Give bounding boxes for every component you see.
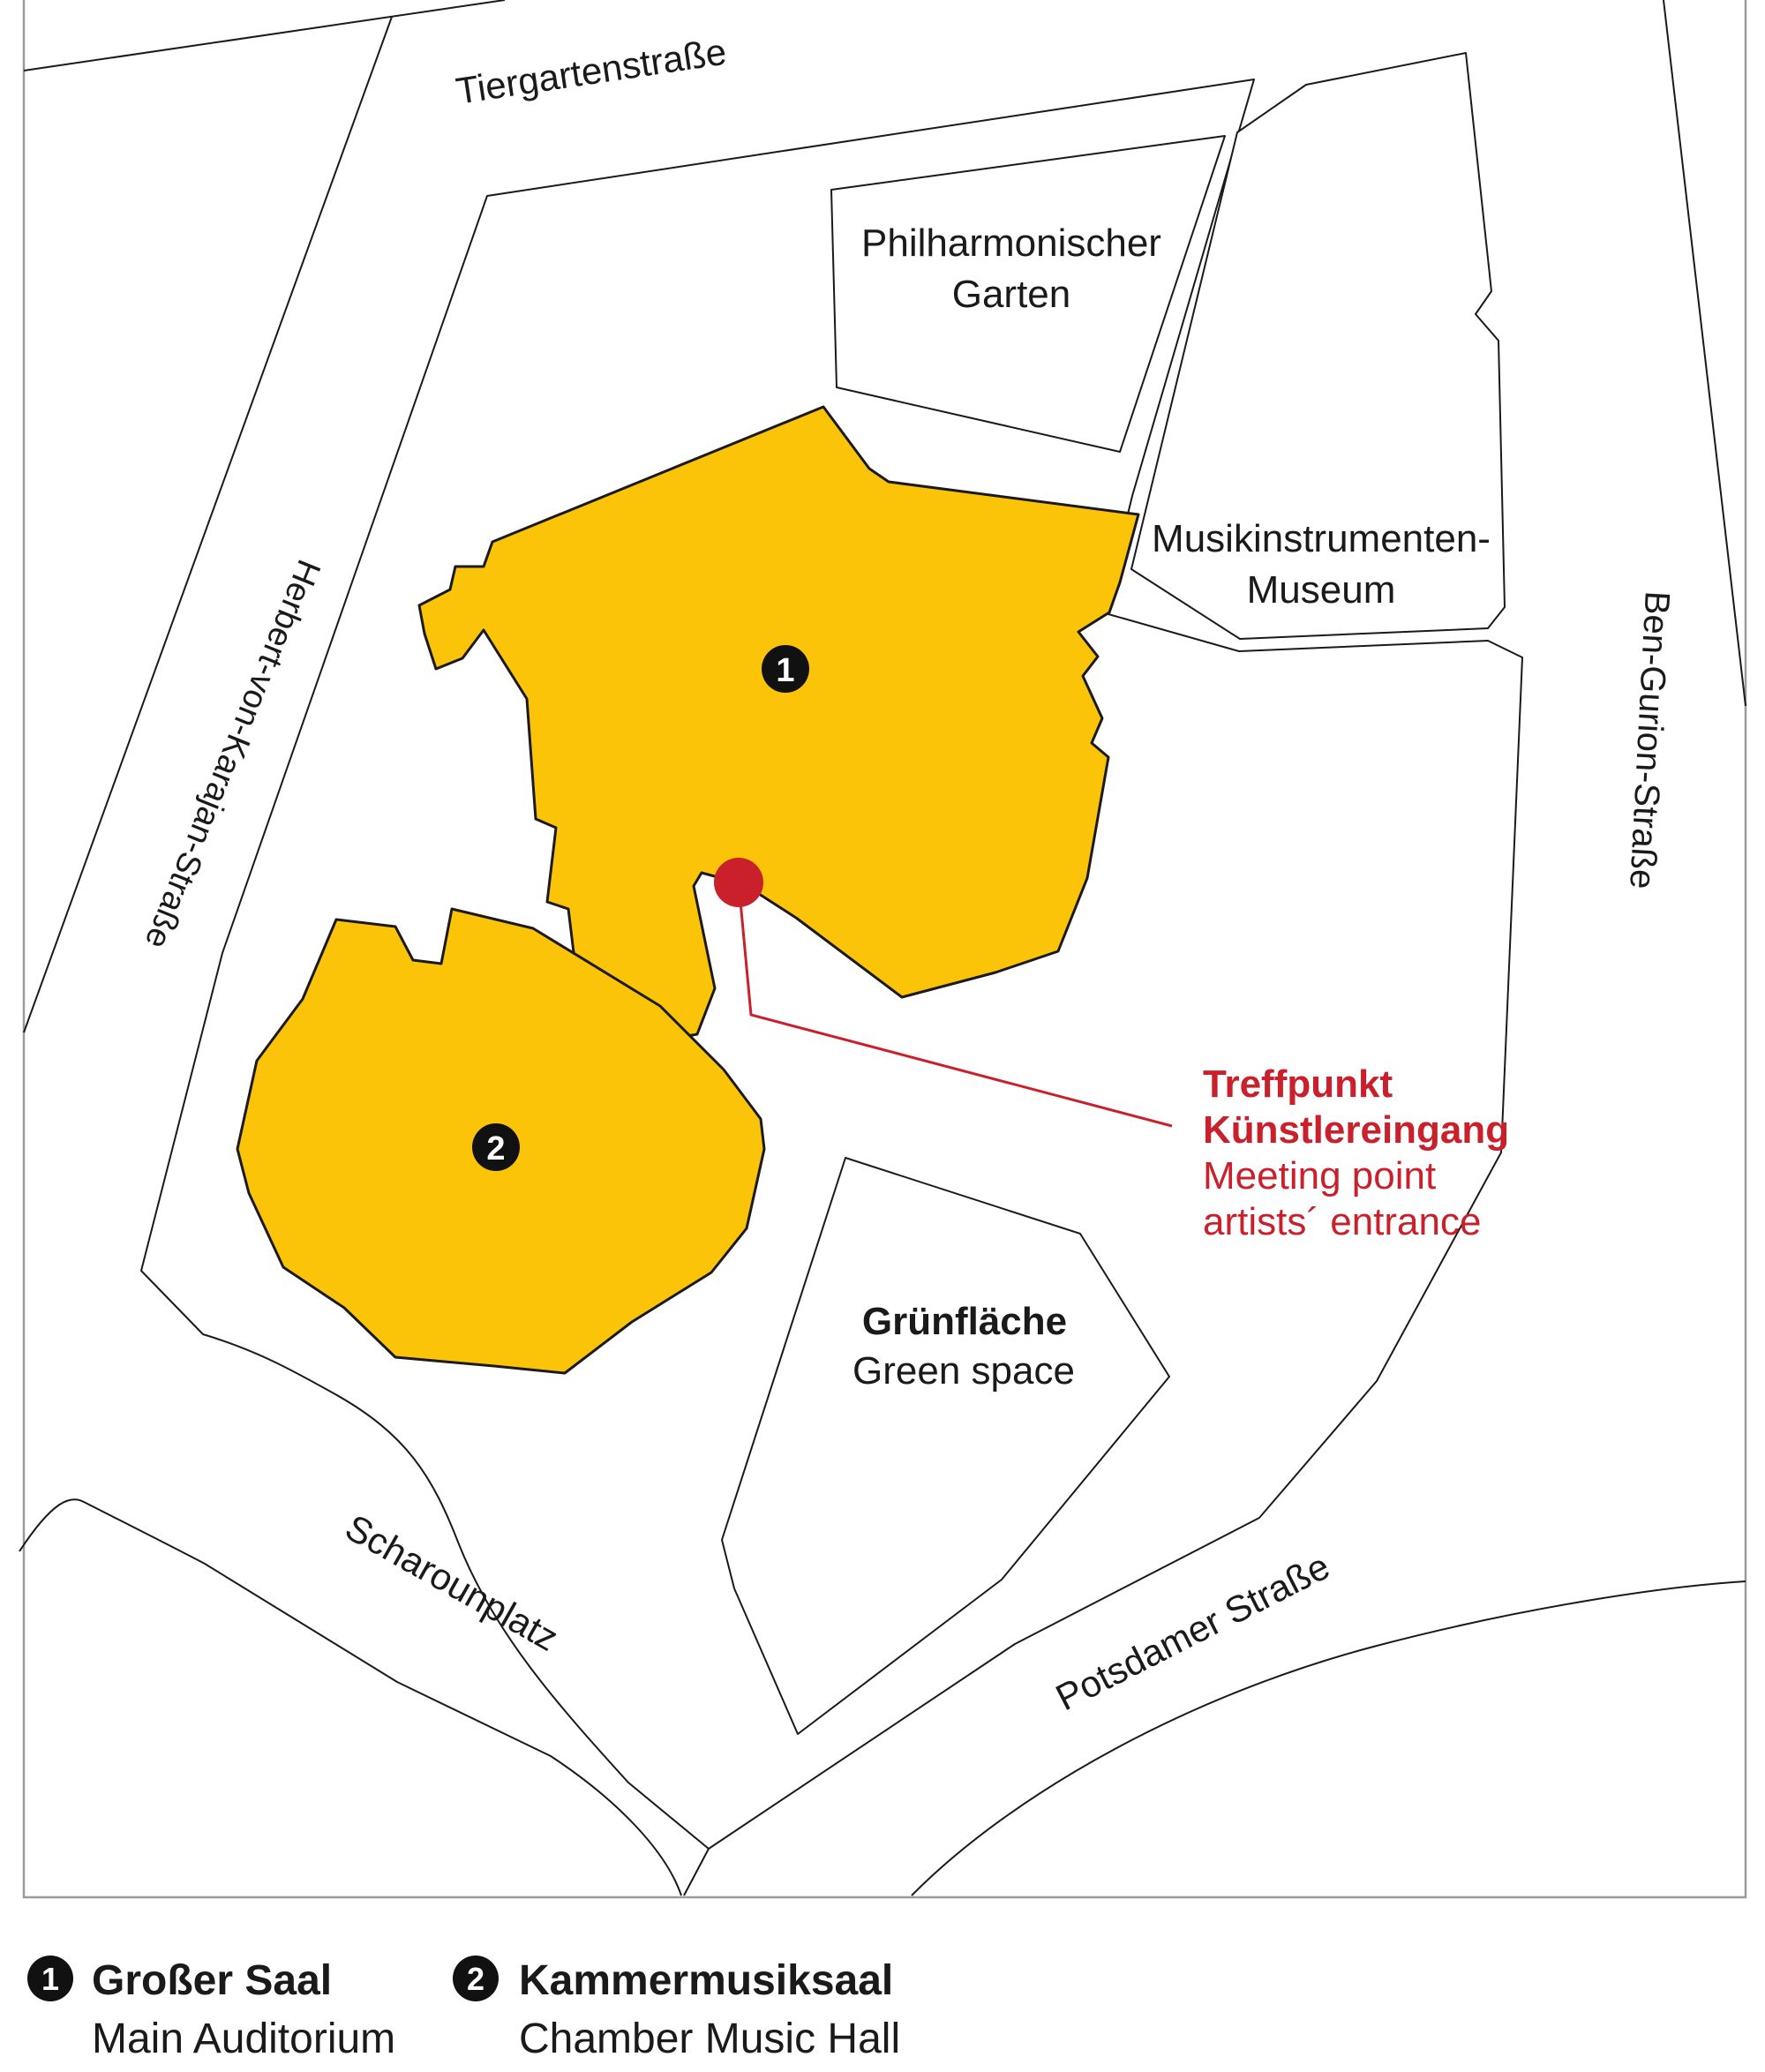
tiergartenstrasse-north-edge-line xyxy=(24,0,505,71)
legend-title-grosser-saal: Großer Saal xyxy=(92,1957,332,2004)
annotation-treffpunkt: Treffpunkt xyxy=(1203,1062,1393,1106)
legend-badge-2-number: 2 xyxy=(467,1961,484,1997)
building-2-badge: 2 xyxy=(472,1123,520,1171)
legend-item-kammermusiksaal: 2 Kammermusiksaal Chamber Music Hall xyxy=(453,1956,900,2062)
site-map-page: Tiergartenstraße Herbert-von-Karajan-Str… xyxy=(0,0,1765,2072)
legend-title-kammermusiksaal: Kammermusiksaal xyxy=(519,1957,893,2004)
legend-subtitle-main-auditorium: Main Auditorium xyxy=(92,2016,395,2062)
garden-label-line1: Philharmonischer xyxy=(861,221,1161,265)
legend: 1 Großer Saal Main Auditorium 2 Kammermu… xyxy=(27,1956,900,2062)
museum-label-line1: Musikinstrumenten- xyxy=(1152,517,1491,560)
meeting-point-dot xyxy=(714,858,763,907)
building-2-badge-number: 2 xyxy=(486,1130,505,1167)
annotation-meeting-point: Meeting point xyxy=(1203,1154,1436,1197)
garden-label-line2: Garten xyxy=(952,273,1071,316)
site-map-canvas: Tiergartenstraße Herbert-von-Karajan-Str… xyxy=(0,0,1765,2072)
annotation-kuenstlereingang: Künstlereingang xyxy=(1203,1108,1509,1152)
building-1-badge-number: 1 xyxy=(776,652,794,689)
annotation-artists-entrance: artists´ entrance xyxy=(1203,1200,1481,1243)
street-label-tiergartenstrasse: Tiergartenstraße xyxy=(454,31,729,112)
green-space-label-en: Green space xyxy=(852,1349,1075,1393)
building-1-badge: 1 xyxy=(762,645,809,693)
legend-subtitle-chamber-music-hall: Chamber Music Hall xyxy=(519,2016,900,2062)
museum-label-line2: Museum xyxy=(1247,568,1396,612)
legend-item-grosser-saal: 1 Großer Saal Main Auditorium xyxy=(27,1956,395,2062)
green-space-label-de: Grünfläche xyxy=(862,1300,1067,1343)
legend-badge-1-number: 1 xyxy=(41,1961,59,1997)
street-label-ben-gurion: Ben-Gurion-Straße xyxy=(1622,590,1677,890)
street-exit-line xyxy=(684,1849,709,1896)
